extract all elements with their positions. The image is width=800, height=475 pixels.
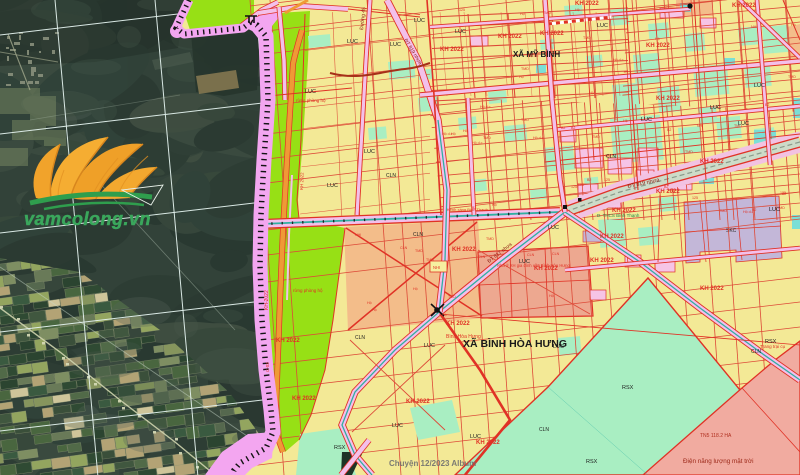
svg-text:TMD: TMD	[592, 135, 600, 139]
svg-text:LUC: LUC	[390, 42, 401, 48]
svg-text:LUC: LUC	[548, 225, 559, 231]
svg-text:Hộ: Hộ	[372, 308, 377, 312]
svg-text:KH 2022: KH 2022	[656, 96, 680, 102]
svg-text:Bình Hòa Hưng: Bình Hòa Hưng	[446, 334, 481, 340]
svg-text:Hộ: Hộ	[520, 12, 525, 16]
svg-text:D. THCS Bình Thạnh: D. THCS Bình Thạnh	[597, 213, 640, 218]
svg-text:KH 2022: KH 2022	[575, 1, 599, 7]
svg-text:Hộ: Hộ	[442, 313, 447, 317]
svg-text:Hộ: Hộ	[492, 203, 497, 207]
svg-text:LUC: LUC	[392, 423, 403, 429]
svg-text:Hộ: Hộ	[463, 129, 468, 133]
svg-text:KH 2022: KH 2022	[700, 286, 724, 292]
svg-text:KH 2022: KH 2022	[600, 234, 624, 240]
svg-text:CLN: CLN	[552, 252, 560, 256]
svg-text:LUC: LUC	[327, 183, 338, 189]
svg-text:LUC: LUC	[769, 207, 780, 213]
svg-text:B2: B2	[561, 126, 565, 130]
svg-text:CLN: CLN	[355, 335, 365, 341]
svg-text:CLN: CLN	[413, 232, 423, 238]
svg-text:TMD: TMD	[719, 209, 727, 213]
svg-text:Hộ d.c: Hộ d.c	[613, 58, 624, 62]
svg-text:rừng phòng hộ: rừng phòng hộ	[296, 98, 326, 103]
svg-text:125: 125	[604, 178, 610, 182]
svg-text:SKC: SKC	[726, 228, 737, 234]
svg-text:NHI: NHI	[578, 183, 584, 187]
svg-text:LUC: LUC	[710, 105, 721, 111]
svg-text:KH 2022: KH 2022	[540, 31, 564, 37]
svg-text:Hộ: Hộ	[519, 75, 524, 79]
svg-text:KH 2022: KH 2022	[646, 43, 670, 49]
svg-text:KH 2022: KH 2022	[590, 258, 614, 264]
svg-text:KH 2022: KH 2022	[498, 34, 522, 40]
svg-text:LUC: LUC	[553, 344, 564, 350]
svg-text:TN5 118.2 HA: TN5 118.2 HA	[700, 433, 732, 439]
svg-text:LUC: LUC	[470, 434, 481, 440]
svg-text:Hộ: Hộ	[575, 8, 580, 12]
svg-text:LUC: LUC	[738, 121, 749, 127]
svg-text:Hộ: Hộ	[549, 294, 554, 298]
svg-text:KH 2022: KH 2022	[292, 396, 316, 402]
svg-text:Chuyện 12/2023 Album: Chuyện 12/2023 Album	[389, 459, 476, 468]
svg-text:125: 125	[692, 196, 698, 200]
svg-text:Hộ: Hộ	[655, 37, 660, 41]
svg-text:B2: B2	[765, 103, 769, 107]
svg-text:KH-2022: KH-2022	[264, 290, 270, 310]
svg-text:KH 2022: KH 2022	[476, 440, 500, 446]
svg-text:Hộ: Hộ	[413, 287, 418, 291]
svg-text:Nhà ở XH gia đình xã2 Bình Hòa: Nhà ở XH gia đình xã2 Bình Hòa Hưng	[497, 263, 570, 268]
svg-text:TMD: TMD	[583, 36, 591, 40]
svg-text:NHI: NHI	[697, 124, 703, 128]
svg-text:C-02: C-02	[265, 362, 270, 372]
svg-text:LUC: LUC	[754, 83, 765, 89]
svg-text:NHI: NHI	[751, 25, 757, 29]
svg-text:KH 2022: KH 2022	[452, 247, 476, 253]
svg-text:Hộ d.c: Hộ d.c	[472, 141, 483, 145]
svg-text:CLN: CLN	[527, 253, 535, 257]
svg-text:RSX: RSX	[334, 445, 346, 451]
svg-text:KH 2022: KH 2022	[732, 3, 756, 9]
svg-text:CLN: CLN	[400, 246, 408, 250]
svg-text:Hộ: Hộ	[589, 91, 594, 95]
svg-text:KH 2022: KH 2022	[406, 399, 430, 405]
svg-text:LUC: LUC	[455, 29, 466, 35]
svg-text:TMD: TMD	[685, 150, 693, 154]
svg-text:B2: B2	[667, 128, 671, 132]
svg-text:RSX: RSX	[765, 339, 777, 345]
svg-text:Hộ d.c: Hộ d.c	[442, 132, 453, 136]
svg-text:KH 2022: KH 2022	[299, 172, 305, 190]
svg-text:TMD: TMD	[788, 75, 796, 79]
svg-text:RSX: RSX	[586, 459, 598, 465]
svg-text:125: 125	[571, 185, 577, 189]
svg-text:vamcolong.vn: vamcolong.vn	[24, 209, 151, 229]
svg-text:TMD: TMD	[448, 295, 456, 299]
svg-text:LUC: LUC	[424, 343, 435, 349]
svg-text:KH 2022: KH 2022	[276, 338, 300, 344]
svg-text:TMD: TMD	[415, 249, 423, 253]
svg-text:LUC: LUC	[414, 18, 425, 24]
svg-text:TMD: TMD	[486, 237, 494, 241]
svg-text:125: 125	[459, 8, 465, 12]
svg-text:NHI: NHI	[433, 265, 440, 270]
svg-text:CLN: CLN	[386, 173, 396, 179]
svg-text:B2: B2	[587, 178, 591, 182]
svg-text:RSX: RSX	[622, 385, 634, 391]
svg-text:Điện năng lượng mặt trời: Điện năng lượng mặt trời	[683, 458, 754, 465]
svg-text:NHI: NHI	[355, 233, 361, 237]
svg-text:Hộ: Hộ	[791, 23, 796, 27]
svg-text:LUC: LUC	[597, 23, 608, 29]
svg-text:TMD: TMD	[483, 136, 491, 140]
svg-text:KH 2022: KH 2022	[656, 189, 680, 195]
svg-text:B2: B2	[571, 126, 575, 130]
svg-text:CLN: CLN	[539, 427, 549, 433]
svg-text:Hộ d.c: Hộ d.c	[533, 136, 544, 140]
svg-text:LUC: LUC	[641, 117, 652, 123]
svg-text:CLN: CLN	[606, 154, 616, 160]
svg-text:Kênh xáng Bình Thạnh: Kênh xáng Bình Thạnh	[447, 207, 488, 212]
svg-text:Hộ d.c: Hộ d.c	[528, 54, 539, 58]
svg-text:TMD: TMD	[426, 258, 434, 262]
svg-text:125: 125	[780, 191, 786, 195]
svg-text:rừng phòng hộ: rừng phòng hộ	[293, 288, 323, 293]
svg-text:TMD: TMD	[521, 67, 529, 71]
svg-text:LUC: LUC	[364, 149, 375, 155]
svg-text:KH 2022: KH 2022	[700, 159, 724, 165]
svg-text:KH 2022: KH 2022	[446, 321, 470, 327]
svg-text:LUC: LUC	[305, 89, 316, 95]
svg-text:B2: B2	[752, 208, 756, 212]
svg-text:Hộ: Hộ	[367, 301, 372, 305]
svg-text:TMD: TMD	[543, 11, 551, 15]
svg-text:LUC: LUC	[347, 39, 358, 45]
svg-text:CLN: CLN	[478, 255, 486, 259]
svg-text:CLN: CLN	[751, 349, 761, 355]
svg-text:Hộ: Hộ	[623, 119, 628, 123]
svg-text:TMD: TMD	[521, 118, 529, 122]
svg-text:Hộ d.c: Hộ d.c	[480, 105, 491, 109]
svg-text:KH 2022: KH 2022	[440, 47, 464, 53]
